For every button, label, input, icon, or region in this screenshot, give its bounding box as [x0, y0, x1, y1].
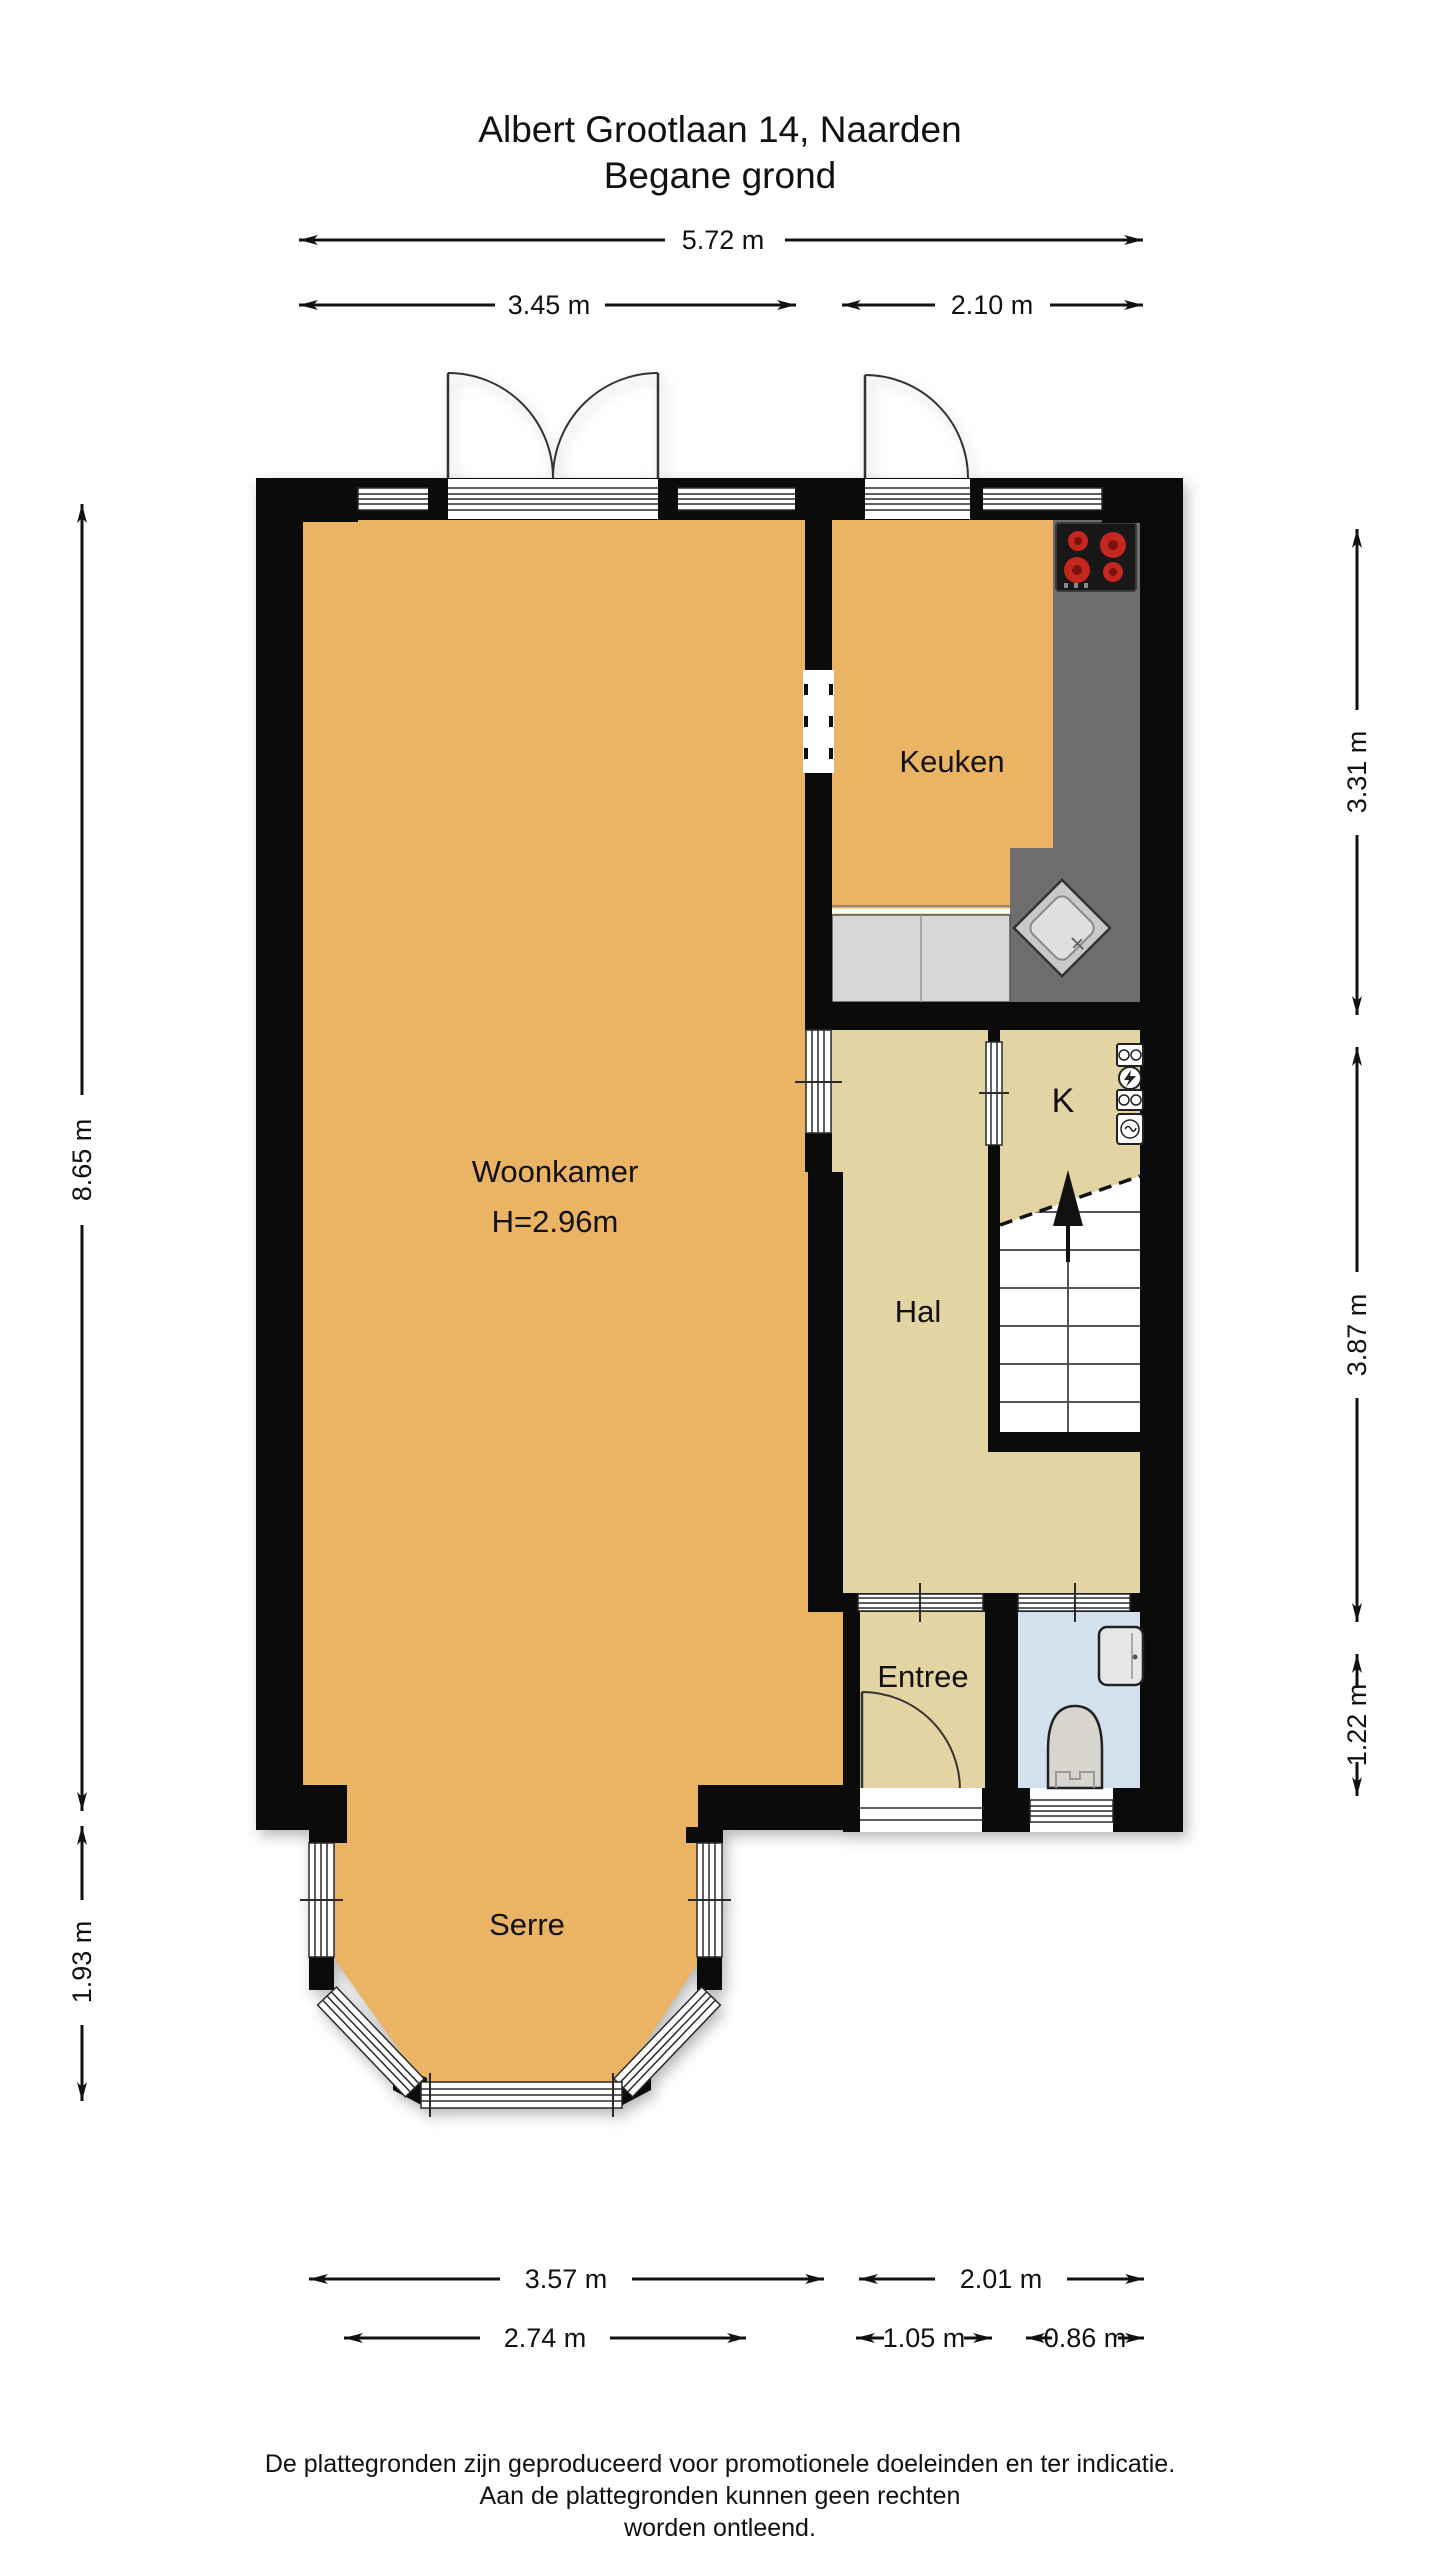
- label-serre: Serre: [489, 1907, 565, 1942]
- page-title: Albert Grootlaan 14, Naarden: [478, 109, 961, 150]
- toilet-window: [1030, 1788, 1113, 1832]
- dim-bottom-toilet: 0.86 m: [1026, 2323, 1144, 2353]
- dim-right-kitchen: 3.31 m: [1342, 529, 1372, 1015]
- svg-text:8.65 m: 8.65 m: [67, 1119, 97, 1202]
- svg-text:1.22 m: 1.22 m: [1342, 1684, 1372, 1767]
- window-mullion: [428, 484, 448, 514]
- svg-text:2.10 m: 2.10 m: [951, 290, 1034, 320]
- label-woonkamer-height: H=2.96m: [492, 1204, 619, 1239]
- dim-bottom-right: 2.01 m: [859, 2264, 1144, 2294]
- dim-bottom-serre: 2.74 m: [344, 2323, 746, 2353]
- svg-text:3.57 m: 3.57 m: [525, 2264, 608, 2294]
- dim-right-entree: 1.22 m: [1342, 1654, 1372, 1796]
- svg-text:3.45 m: 3.45 m: [508, 290, 591, 320]
- label-keuken: Keuken: [899, 744, 1004, 779]
- opening-woonkamer-keuken: [803, 670, 834, 773]
- dim-top-left: 3.45 m: [299, 290, 796, 320]
- svg-text:2.74 m: 2.74 m: [504, 2323, 587, 2353]
- room-entree-floor: [843, 1612, 985, 1788]
- double-door-swing-right: [553, 373, 658, 478]
- svg-text:0.86 m: 0.86 m: [1044, 2323, 1127, 2353]
- dim-top-total: 5.72 m: [299, 225, 1143, 255]
- window-mullion: [970, 484, 983, 514]
- floorplan-svg: Albert Grootlaan 14, Naarden Begane gron…: [0, 0, 1440, 2560]
- svg-text:5.72 m: 5.72 m: [682, 225, 765, 255]
- room-serre-neck: [347, 1785, 698, 1830]
- front-door-opening: [860, 1788, 982, 1832]
- svg-text:1.93 m: 1.93 m: [67, 1921, 97, 2004]
- footer-disclaimer-line1: De plattegronden zijn geproduceerd voor …: [265, 2450, 1175, 2478]
- stove-icon: [1056, 523, 1136, 591]
- page-subtitle: Begane grond: [604, 155, 836, 196]
- wall-junction: [795, 478, 865, 520]
- svg-text:3.31 m: 3.31 m: [1342, 731, 1372, 814]
- room-woonkamer: [303, 520, 843, 1785]
- label-hal: Hal: [895, 1294, 942, 1329]
- meter-boiler-icons: [1117, 1044, 1143, 1144]
- dim-right-hall: 3.87 m: [1342, 1047, 1372, 1622]
- label-woonkamer: Woonkamer: [472, 1154, 639, 1189]
- toilet-icon: [1048, 1706, 1102, 1788]
- label-kast: K: [1052, 1082, 1075, 1120]
- dim-top-right: 2.10 m: [842, 290, 1143, 320]
- footer-disclaimer-line3: worden ontleend.: [623, 2514, 816, 2542]
- svg-text:3.87 m: 3.87 m: [1342, 1294, 1372, 1377]
- svg-text:2.01 m: 2.01 m: [960, 2264, 1043, 2294]
- window-mullion: [658, 484, 678, 514]
- svg-text:1.05 m: 1.05 m: [883, 2323, 966, 2353]
- dim-bottom-left: 3.57 m: [309, 2264, 824, 2294]
- washbasin-icon: [1099, 1627, 1143, 1685]
- kitchen-door-swing: [865, 375, 968, 478]
- dim-left-serre: 1.93 m: [67, 1826, 97, 2101]
- floorplan-page: Albert Grootlaan 14, Naarden Begane gron…: [0, 0, 1440, 2560]
- label-entree: Entree: [877, 1659, 968, 1694]
- dim-left-main: 8.65 m: [67, 504, 97, 1811]
- floorplan: Woonkamer H=2.96m Keuken K Hal Entree Se…: [256, 373, 1183, 2117]
- footer-disclaimer-line2: Aan de plattegronden kunnen geen rechten: [480, 2482, 961, 2510]
- dim-bottom-entree: 1.05 m: [856, 2323, 992, 2353]
- double-door-swing-left: [448, 373, 553, 478]
